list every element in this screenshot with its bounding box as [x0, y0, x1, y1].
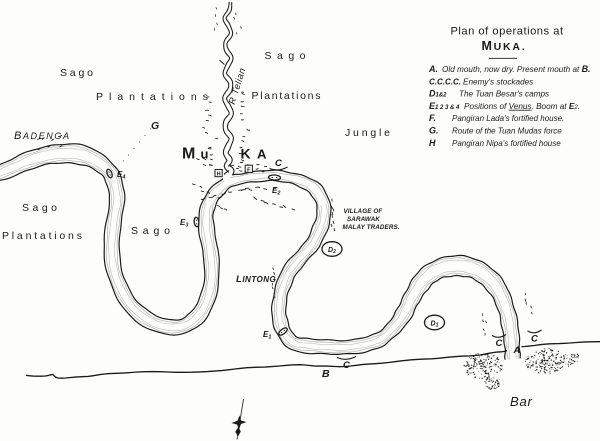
svg-text:Pangiran Lada's fortified hous: Pangiran Lada's fortified house. [452, 114, 564, 123]
svg-text:LINTONG: LINTONG [236, 274, 276, 285]
svg-text:C: C [275, 158, 282, 169]
svg-text:E4: E4 [117, 170, 125, 181]
svg-text:H: H [429, 138, 436, 148]
svg-text:SARAWAK: SARAWAK [347, 216, 380, 223]
svg-text:Jungle: Jungle [345, 127, 393, 139]
svg-text:E1: E1 [263, 330, 271, 341]
svg-text:A: A [513, 345, 521, 356]
svg-text:M: M [182, 146, 195, 163]
svg-text:C: C [531, 334, 538, 345]
svg-text:G: G [151, 120, 159, 132]
svg-text:C: C [343, 360, 350, 371]
svg-text:MALAY TRADERS.: MALAY TRADERS. [343, 224, 400, 231]
svg-text:Positions of Venus. Boom at E2: Positions of Venus. Boom at E2. [464, 102, 580, 111]
svg-text:Sago: Sago [131, 225, 175, 237]
svg-text:Bar: Bar [510, 394, 533, 409]
svg-text:VILLAGE OF: VILLAGE OF [344, 208, 383, 215]
svg-text:Old mouth, now dry. Present mo: Old mouth, now dry. Present mouth at B. [442, 64, 591, 74]
svg-text:Pangiran Nipa's fortified hous: Pangiran Nipa's fortified house [452, 139, 561, 148]
svg-text:The Tuan Besar's camps: The Tuan Besar's camps [459, 90, 549, 99]
svg-text:A.: A. [428, 64, 438, 74]
svg-text:C.C.C.C.: C.C.C.C. [429, 78, 461, 87]
svg-text:C: C [496, 338, 503, 349]
svg-text:BADENGA: BADENGA [14, 130, 71, 142]
svg-text:u: u [201, 147, 209, 162]
svg-text:E3: E3 [180, 218, 188, 229]
svg-text:Plantations: Plantations [96, 91, 214, 103]
svg-text:Route of the Tuan Mudas force: Route of the Tuan Mudas force [452, 127, 562, 136]
svg-text:F.: F. [429, 113, 436, 123]
svg-text:E1 2 3 & 4: E1 2 3 & 4 [429, 101, 460, 111]
svg-text:K: K [241, 146, 251, 162]
svg-text:Sago: Sago [265, 50, 312, 62]
svg-text:B: B [322, 368, 330, 380]
svg-text:E2: E2 [272, 186, 280, 197]
svg-text:D1: D1 [431, 320, 439, 328]
svg-text:Enemy's stockades: Enemy's stockades [463, 78, 533, 87]
svg-text:D1&2: D1&2 [429, 89, 447, 99]
svg-text:Sago: Sago [60, 67, 96, 79]
svg-text:Plantations: Plantations [252, 90, 323, 102]
svg-text:A: A [257, 147, 267, 162]
svg-text:D2: D2 [328, 247, 336, 255]
svg-text:Sago: Sago [22, 202, 61, 214]
svg-text:MUKA.: MUKA. [481, 39, 526, 53]
svg-text:Plan of operations at: Plan of operations at [450, 26, 564, 38]
svg-text:H: H [217, 172, 221, 178]
svg-text:Plantations: Plantations [2, 230, 85, 242]
svg-text:G.: G. [429, 126, 439, 136]
